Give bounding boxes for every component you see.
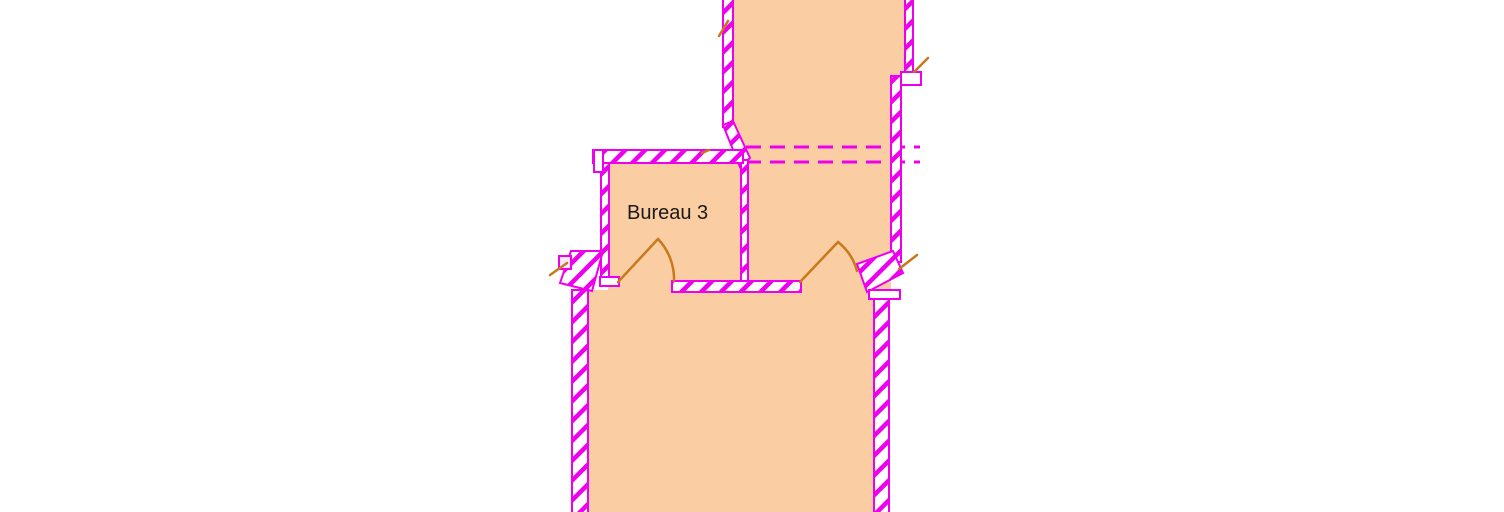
cap-bureau3-top-end bbox=[594, 150, 603, 172]
wall-top-room-right-upper bbox=[905, 0, 913, 78]
tick-top-right-step bbox=[914, 58, 928, 72]
floor-plan-drawing: Bureau 3 bbox=[0, 0, 1504, 512]
wall-bureau3-top bbox=[593, 150, 743, 163]
wall-partition-bottom bbox=[672, 281, 801, 292]
wall-bottom-room-right bbox=[874, 290, 889, 512]
wall-bureau3-left bbox=[601, 163, 609, 279]
wall-bottom-room-left bbox=[572, 290, 588, 512]
room-label-bureau3: Bureau 3 bbox=[627, 202, 708, 224]
cap-bureau3-left-foot bbox=[600, 277, 619, 286]
floor-plan: Bureau 3 bbox=[0, 0, 1504, 512]
floor-bottom-room bbox=[588, 290, 876, 512]
wall-right-corridor bbox=[891, 76, 901, 262]
wall-bureau3-right bbox=[741, 160, 748, 283]
wall-top-room-left bbox=[723, 0, 733, 127]
cap-bottom-right-foot bbox=[869, 290, 900, 299]
cap-top-right-foot bbox=[901, 72, 921, 85]
